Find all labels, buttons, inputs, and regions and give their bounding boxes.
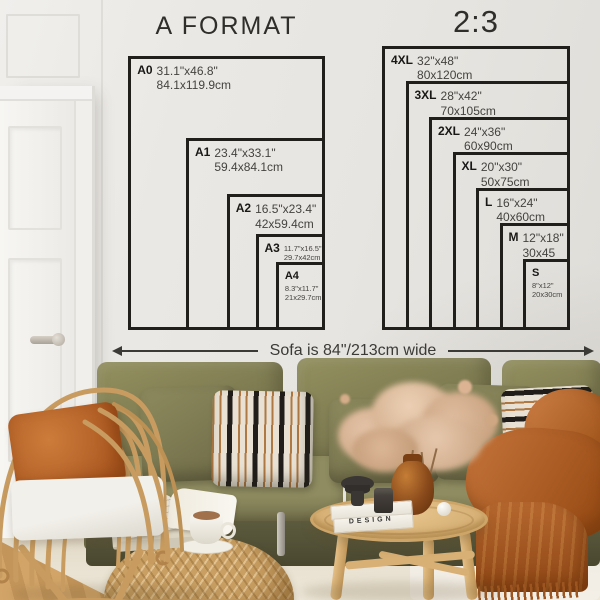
size-guide-mockup: A031.1"x46.8"84.1x119.9cmA123.4"x33.1"59… (0, 0, 600, 600)
size-label: M12"x18"30x45 (503, 226, 568, 260)
rattan-chair-front-canes (80, 400, 190, 570)
size-inches: 28"x42" (441, 89, 496, 103)
size-dimensions: 16.5"x23.4"42x59.4cm (255, 202, 316, 231)
size-label: 4XL32"x48"80x120cm (385, 49, 567, 83)
size-dimensions: 28"x42"70x105cm (441, 89, 496, 118)
size-inches: 16"x24" (496, 196, 545, 210)
size-dimensions: 23.4"x33.1"59.4x84.1cm (214, 146, 283, 175)
size-label: XL20"x30"50x75cm (456, 155, 568, 189)
design-book-stack: DESIGN (330, 500, 412, 533)
flower-speck (340, 394, 350, 404)
arrow-left-icon (112, 346, 122, 356)
size-inches: 8"x12" (532, 281, 564, 290)
size-dimensions: 20"x30"50x75cm (481, 160, 530, 189)
size-cm: 29.7x42cm (284, 253, 322, 262)
size-cm: 84.1x119.9cm (157, 78, 232, 92)
size-box-A4: A48.3"x11.7"21x29.7cm (276, 262, 325, 330)
flower-speck (366, 390, 378, 402)
size-inches: 16.5"x23.4" (255, 202, 316, 216)
size-label: A031.1"x46.8"84.1x119.9cm (131, 59, 322, 93)
size-dimensions: 12"x18"30x45 (523, 231, 564, 260)
size-label: A123.4"x33.1"59.4x84.1cm (189, 141, 322, 175)
size-inches: 23.4"x33.1" (214, 146, 283, 160)
arrow-line-left (122, 350, 258, 352)
size-name: S (532, 267, 564, 280)
size-inches: 24"x36" (464, 125, 513, 139)
flower-speck (458, 380, 472, 394)
size-name: A2 (236, 202, 251, 231)
size-dimensions: 32"x48"80x120cm (417, 54, 472, 83)
size-label: A48.3"x11.7"21x29.7cm (279, 265, 322, 302)
size-cm: 59.4x84.1cm (214, 160, 283, 174)
throw-blanket-cascade (476, 502, 588, 592)
ratio-title: 2:3 (382, 4, 570, 40)
size-dimensions: 8"x12"20x30cm (532, 281, 564, 299)
size-inches: 20"x30" (481, 160, 530, 174)
size-inches: 31.1"x46.8" (157, 64, 232, 78)
flower-speck (486, 414, 498, 426)
size-dimensions: 16"x24"40x60cm (496, 196, 545, 225)
wall-panel-molding (6, 14, 80, 78)
size-box-S: S8"x12"20x30cm (523, 259, 570, 330)
size-cm: 21x29.7cm (285, 293, 319, 302)
size-label: 3XL28"x42"70x105cm (409, 84, 568, 118)
size-label: S8"x12"20x30cm (526, 262, 567, 299)
size-label: A216.5"x23.4"42x59.4cm (230, 197, 322, 231)
sofa-leg-left (277, 512, 285, 556)
size-name: A4 (285, 270, 319, 283)
size-inches: 11.7"x16.5" (284, 244, 322, 253)
size-dimensions: 31.1"x46.8"84.1x119.9cm (157, 64, 232, 93)
size-cm: 20x30cm (532, 290, 564, 299)
size-name: A3 (265, 242, 280, 262)
size-name: XL (462, 160, 477, 189)
size-inches: 8.3"x11.7" (285, 284, 319, 293)
arrow-line-right (448, 350, 584, 352)
size-name: A1 (195, 146, 210, 175)
size-name: L (485, 196, 492, 225)
arrow-right-icon (584, 346, 594, 356)
size-inches: 32"x48" (417, 54, 472, 68)
size-label: L16"x24"40x60cm (479, 191, 567, 225)
decor-sphere (437, 502, 451, 516)
cup-handle (220, 522, 236, 539)
size-name: 4XL (391, 54, 413, 83)
size-dimensions: 24"x36"60x90cm (464, 125, 513, 154)
size-cm: 42x59.4cm (255, 217, 316, 231)
pillow-striped-left (211, 390, 314, 488)
size-name: M (509, 231, 519, 260)
door-lintel (0, 86, 92, 101)
size-inches: 12"x18" (523, 231, 564, 245)
size-name: 3XL (415, 89, 437, 118)
door-panel-upper (8, 126, 62, 230)
black-tumbler (374, 488, 393, 513)
size-dimensions: 8.3"x11.7"21x29.7cm (285, 284, 319, 302)
table-shadow (300, 582, 500, 600)
size-dimensions: 11.7"x16.5"29.7x42cm (284, 242, 322, 262)
pedestal-bowl-stem (351, 491, 364, 506)
size-name: 2XL (438, 125, 460, 154)
size-label: A311.7"x16.5"29.7x42cm (259, 237, 322, 262)
size-name: A0 (137, 64, 152, 93)
a-format-title: A FORMAT (128, 12, 325, 41)
size-label: 2XL24"x36"60x90cm (432, 120, 567, 154)
door-handle-rosette (52, 333, 65, 346)
